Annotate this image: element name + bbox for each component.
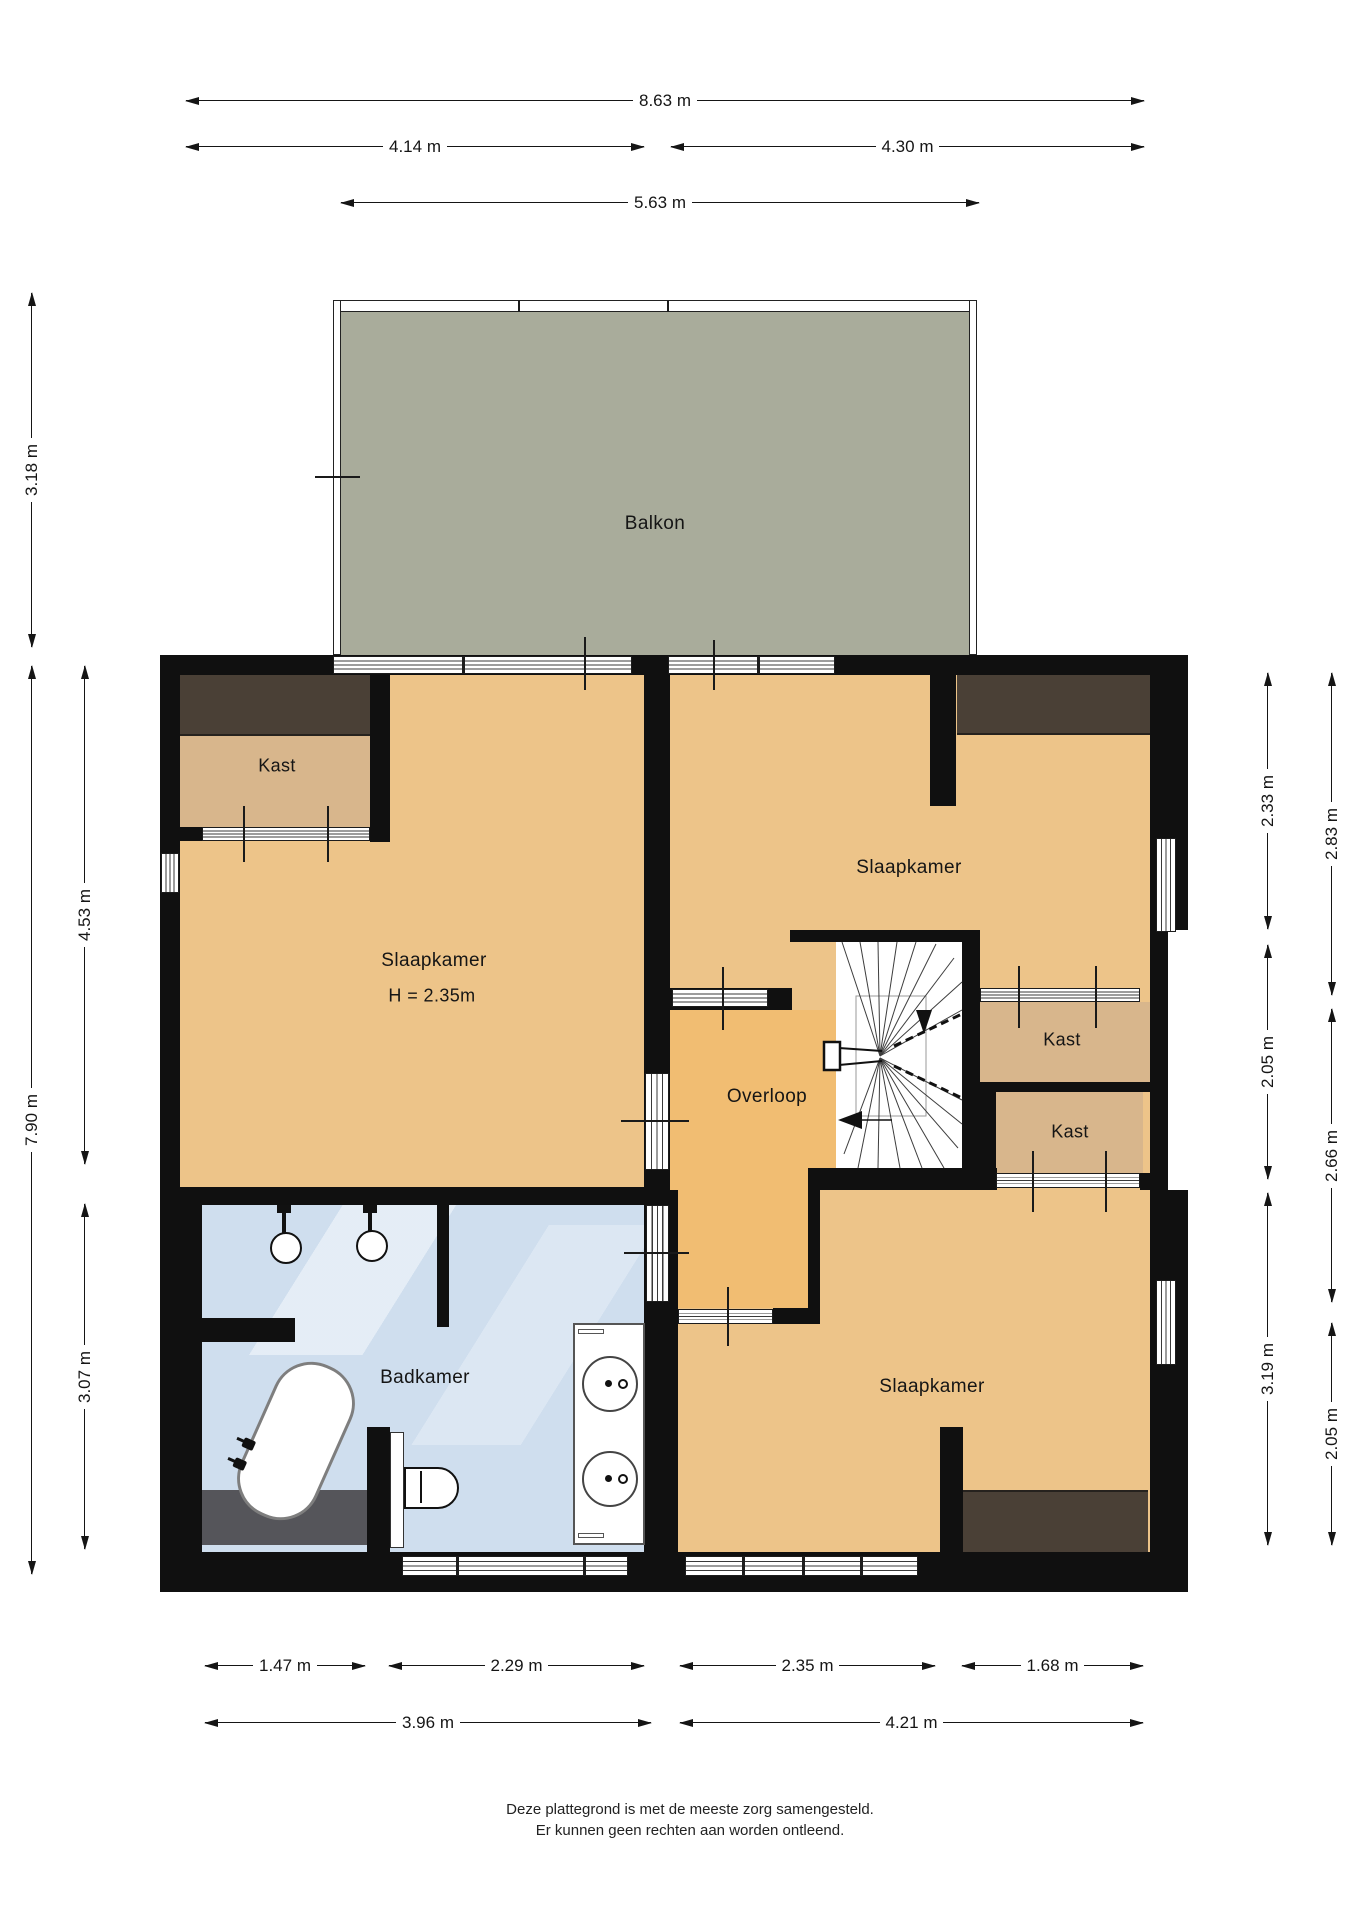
dimension-label: 1.47 m — [253, 1656, 317, 1676]
bedroom-topright-label: Slaapkamer — [856, 857, 961, 879]
dimension-h_total: 7.90 m — [23, 665, 41, 1575]
arrowhead-down — [1328, 1532, 1336, 1546]
wall-bedroom-bottomright-left — [808, 1190, 820, 1323]
closet-right-lower-label: Kast — [1051, 1122, 1089, 1143]
survey-tick — [722, 967, 724, 1030]
dimension-r_in_top: 2.33 m — [1259, 672, 1277, 930]
dimension-label: 4.53 m — [75, 883, 95, 947]
survey-tick — [624, 1252, 689, 1254]
closet-right-upper-door — [980, 988, 1140, 1002]
arrowhead-down — [81, 1151, 89, 1165]
arrowhead-down — [1264, 1166, 1272, 1180]
wall-left — [160, 655, 180, 1592]
landing-floor — [670, 1190, 808, 1308]
window-right-upper — [1156, 838, 1176, 932]
arrowhead-up — [28, 665, 36, 679]
washbasin-tap — [618, 1379, 628, 1389]
window-left-wall — [161, 853, 179, 893]
dimension-w_left: 4.14 m — [185, 138, 645, 156]
dimension-r_in_mid: 2.05 m — [1259, 944, 1277, 1180]
balcony-label: Balkon — [625, 513, 686, 535]
wardrobe-topright — [957, 675, 1150, 735]
arrowhead-down — [1328, 982, 1336, 996]
balcony-floor — [341, 312, 969, 655]
closet-right-lower-door — [996, 1173, 1140, 1188]
dimension-r_out_bot: 2.05 m — [1323, 1322, 1341, 1546]
wall-landing-bottom-right — [773, 1308, 820, 1324]
closet-topleft-floor — [180, 734, 370, 827]
dimension-label: 1.68 m — [1021, 1656, 1085, 1676]
washbasin-drain — [605, 1380, 612, 1387]
arrowhead-left — [204, 1662, 218, 1670]
dimension-label: 2.33 m — [1258, 769, 1278, 833]
disclaimer: Deze plattegrond is met de meeste zorg s… — [280, 1799, 1100, 1841]
dimension-r_out_top: 2.83 m — [1323, 672, 1341, 996]
dimension-r_out_mid: 2.66 m — [1323, 1008, 1341, 1303]
dimension-label: 3.07 m — [75, 1345, 95, 1409]
dimension-label: 2.35 m — [776, 1656, 840, 1676]
closet-right-upper-label: Kast — [1043, 1030, 1081, 1051]
survey-tick — [1105, 1151, 1107, 1212]
wall-closets-divider — [975, 1082, 1150, 1092]
arrowhead-up — [81, 665, 89, 679]
arrowhead-down — [28, 634, 36, 648]
arrowhead-right — [631, 1662, 645, 1670]
balcony-door-right — [668, 656, 835, 674]
bedroom-topright-door — [672, 989, 768, 1007]
toilet-panel — [390, 1432, 404, 1548]
survey-tick — [713, 640, 715, 690]
dimension-label: 2.29 m — [485, 1656, 549, 1676]
survey-tick — [1032, 1151, 1034, 1212]
arrowhead-right — [1130, 1662, 1144, 1670]
closet-topleft-label: Kast — [258, 756, 296, 777]
arrowhead-right — [631, 143, 645, 151]
wall-closet-topleft — [370, 655, 390, 842]
shower-head-rose — [356, 1230, 388, 1262]
dimension-label: 7.90 m — [22, 1088, 42, 1152]
wall-shower-glass — [437, 1205, 449, 1327]
arrowhead-right — [966, 199, 980, 207]
window-divider — [757, 656, 760, 674]
dimension-r_in_bot: 3.19 m — [1259, 1192, 1277, 1546]
wall-bedroom-bathroom — [160, 1187, 668, 1205]
arrowhead-right — [352, 1662, 366, 1670]
survey-tick — [1095, 966, 1097, 1028]
arrowhead-up — [81, 1203, 89, 1217]
arrowhead-up — [1264, 672, 1272, 686]
washbasin-drain — [605, 1475, 612, 1482]
wall-closet-lower-fill — [1140, 1173, 1150, 1190]
railing-divider — [518, 300, 520, 312]
arrowhead-up — [1264, 944, 1272, 958]
bedroom-bottomright-label: Slaapkamer — [879, 1376, 984, 1398]
dimension-b_right: 4.21 m — [679, 1714, 1144, 1732]
wall-right-notch — [1168, 930, 1189, 1190]
arrowhead-up — [1328, 1322, 1336, 1336]
wall-closet-lower-left — [980, 1092, 996, 1190]
dimension-label: 2.05 m — [1322, 1402, 1342, 1466]
arrowhead-down — [81, 1536, 89, 1550]
dimension-label: 4.14 m — [383, 137, 447, 157]
arrowhead-right — [922, 1662, 936, 1670]
landing-bottom-door — [678, 1309, 773, 1324]
dimension-w_total: 8.63 m — [185, 92, 1145, 110]
dimension-w_balcony: 5.63 m — [340, 194, 980, 212]
disclaimer-line2: Er kunnen geen rechten aan worden ontlee… — [280, 1820, 1100, 1841]
disclaimer-line1: Deze plattegrond is met de meeste zorg s… — [280, 1799, 1100, 1820]
dimension-b_left: 3.96 m — [204, 1714, 652, 1732]
railing-divider — [667, 300, 669, 312]
survey-tick — [327, 806, 329, 862]
dimension-b_kast: 1.47 m — [204, 1657, 366, 1675]
wall-shower-low — [202, 1318, 295, 1342]
dimension-label: 3.18 m — [22, 438, 42, 502]
dimension-h_bedleft: 4.53 m — [76, 665, 94, 1165]
arrowhead-right — [1131, 143, 1145, 151]
arrowhead-left — [670, 143, 684, 151]
dimension-label: 4.30 m — [876, 137, 940, 157]
bathroom-label: Badkamer — [380, 1367, 470, 1389]
window-divider — [583, 1556, 586, 1576]
floorplan-canvas: Balkon — [0, 0, 1358, 1920]
arrowhead-down — [1264, 1532, 1272, 1546]
survey-tick — [315, 476, 360, 478]
arrowhead-left — [679, 1662, 693, 1670]
dimension-label: 2.66 m — [1322, 1124, 1342, 1188]
survey-tick — [727, 1287, 729, 1346]
arrowhead-up — [1328, 672, 1336, 686]
shower-head-rose — [270, 1232, 302, 1264]
dimension-label: 2.05 m — [1258, 1030, 1278, 1094]
window-bottom-bathroom — [402, 1556, 628, 1576]
window-divider — [802, 1556, 805, 1576]
arrowhead-up — [1328, 1008, 1336, 1022]
dimension-label: 3.19 m — [1258, 1337, 1278, 1401]
wardrobe-bottomright — [963, 1490, 1148, 1554]
arrowhead-up — [1264, 1192, 1272, 1206]
dimension-label: 2.83 m — [1322, 802, 1342, 866]
arrowhead-left — [185, 97, 199, 105]
wall-landing-bottom-left — [644, 1308, 678, 1324]
survey-tick — [621, 1120, 689, 1122]
closet-topleft-door — [202, 827, 370, 841]
dimension-h_balcony: 3.18 m — [23, 292, 41, 648]
toilet-seat-line — [420, 1471, 422, 1503]
window-divider — [860, 1556, 863, 1576]
wall-bottom — [160, 1552, 1188, 1592]
window-divider — [462, 656, 465, 674]
window-divider — [742, 1556, 745, 1576]
arrowhead-left — [340, 199, 354, 207]
survey-tick — [243, 806, 245, 862]
arrowhead-left — [679, 1719, 693, 1727]
bedroom-left-height-note: H = 2.35m — [388, 986, 475, 1007]
arrowhead-down — [1264, 916, 1272, 930]
shower-head — [363, 1205, 377, 1213]
arrowhead-left — [204, 1719, 218, 1727]
dimension-b_hall: 2.35 m — [679, 1657, 936, 1675]
dimension-label: 3.96 m — [396, 1713, 460, 1733]
washbasin-shelf — [578, 1329, 604, 1334]
survey-tick — [584, 637, 586, 690]
dimension-label: 8.63 m — [633, 91, 697, 111]
arrowhead-left — [185, 143, 199, 151]
balcony-door-left — [333, 656, 632, 674]
bedroom-left-label: Slaapkamer — [381, 950, 486, 972]
arrowhead-down — [28, 1561, 36, 1575]
shower-head — [277, 1205, 291, 1213]
dimension-h_bath: 3.07 m — [76, 1203, 94, 1550]
wall-toilet-stub — [367, 1427, 390, 1552]
dimension-label: 5.63 m — [628, 193, 692, 213]
washbasin-tap — [618, 1474, 628, 1484]
dimension-b_bath: 2.29 m — [388, 1657, 645, 1675]
toilet-bowl — [404, 1467, 459, 1509]
wall-closet-topleft-stub — [180, 827, 202, 841]
arrowhead-right — [638, 1719, 652, 1727]
arrowhead-left — [961, 1662, 975, 1670]
washbasin-shelf — [578, 1533, 604, 1538]
wardrobe-topleft — [180, 675, 370, 736]
washbasin-unit — [573, 1323, 645, 1545]
arrowhead-right — [1131, 97, 1145, 105]
landing-label: Overloop — [727, 1086, 807, 1108]
arrowhead-down — [1328, 1289, 1336, 1303]
arrowhead-left — [388, 1662, 402, 1670]
dimension-b_ward: 1.68 m — [961, 1657, 1144, 1675]
dimension-w_right: 4.30 m — [670, 138, 1145, 156]
balcony-railing-top — [333, 300, 977, 312]
dimension-label: 4.21 m — [880, 1713, 944, 1733]
arrowhead-right — [1130, 1719, 1144, 1727]
balcony-railing-right — [969, 300, 977, 655]
window-divider — [456, 1556, 459, 1576]
arrowhead-up — [28, 292, 36, 306]
survey-tick — [1018, 966, 1020, 1028]
window-right-lower — [1156, 1280, 1176, 1365]
wall-left-thick — [180, 1187, 202, 1592]
staircase — [820, 930, 980, 1190]
wall-stub-topright — [930, 655, 956, 806]
wall-bottomright-stub — [940, 1427, 963, 1552]
